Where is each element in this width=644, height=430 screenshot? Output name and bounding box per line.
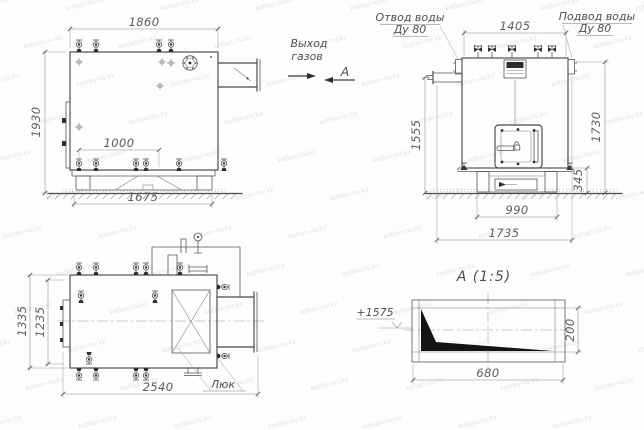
dim-total-depth: 1735 [489, 226, 520, 240]
flue-duct-plan [217, 292, 257, 352]
elevation-text: +1575 [356, 306, 393, 319]
dim-width-inner: 1235 [33, 307, 47, 338]
water-outlet-label: Отвод воды Ду 80 [376, 11, 458, 59]
water-inlet-flange [568, 60, 577, 75]
crosshair-icon [156, 82, 164, 90]
elevation-mark: +1575 [356, 306, 412, 328]
hatch-opening [172, 290, 210, 353]
valve-icon [508, 45, 517, 58]
drawing-sheet: kotlan-nv.kzkotlan-nv.kzkotlan-nv.kzkotl… [0, 0, 644, 430]
valve-icon [93, 368, 99, 380]
side-view-dimensions: 1860 1930 1000 1675 [29, 15, 220, 208]
valve-icon [221, 159, 227, 171]
crosshair-icon [75, 123, 83, 131]
crosshair-icon [167, 59, 175, 67]
valve-icon [474, 45, 483, 58]
valve-icon [133, 263, 139, 275]
section-title: А (1:5) [456, 269, 511, 285]
dim-base-width: 1675 [128, 190, 159, 204]
side-stub-pipe [428, 72, 462, 84]
base-frame [72, 170, 215, 190]
valve-icon [93, 263, 99, 275]
valve-icon [93, 159, 99, 171]
front-base [458, 168, 572, 192]
section-cut-mark: А [324, 64, 355, 83]
valve-icon [217, 353, 229, 359]
valve-icon [133, 159, 139, 171]
flue-duct [218, 59, 260, 91]
dim-base-height: 345 [571, 168, 585, 191]
dim-height-right: 1730 [589, 112, 603, 143]
valve-icon [168, 40, 174, 52]
valve-icon [152, 291, 158, 303]
valve-icon [76, 263, 82, 275]
dim-height: 1930 [29, 107, 43, 138]
valve-icon [76, 368, 82, 380]
dim-length: 2540 [143, 380, 174, 394]
valve-icon [534, 45, 543, 58]
valve-icon [548, 45, 557, 58]
gas-flow-arrow-icon [307, 73, 316, 79]
section-view: А (1:5) +1575 680 200 [356, 269, 582, 384]
furnace-door [495, 125, 542, 168]
water-outlet-text-2: Ду 80 [393, 23, 427, 36]
plan-view: 1335 1235 2540 Люк [15, 233, 265, 398]
plan-door-plate [60, 300, 70, 347]
side-view: 1860 1930 1000 1675 Выход газов А [29, 15, 355, 208]
dim-height: 200 [563, 318, 577, 341]
technical-drawing-canvas: 1860 1930 1000 1675 Выход газов А [0, 0, 644, 430]
water-inlet-label: Подвод воды Ду 80 [559, 10, 636, 58]
water-outlet-flange [453, 60, 462, 75]
door-handle [497, 146, 515, 151]
gas-outlet-text-1: Выход [290, 37, 327, 50]
valve-icon [217, 284, 229, 290]
valve-icon [156, 40, 162, 52]
valve-icon [176, 159, 182, 171]
valve-icon [133, 368, 139, 380]
section-arrow-icon [324, 77, 333, 83]
water-inlet-text-2: Ду 80 [578, 22, 612, 35]
crosshair-icon [158, 58, 166, 66]
crosshair-icon [75, 58, 83, 66]
dim-width-top: 1405 [500, 19, 531, 33]
front-view-dimensions: 1405 1555 1730 345 990 1735 [409, 19, 609, 244]
dim-width-outer: 1335 [15, 306, 29, 337]
valve-icon [488, 45, 497, 58]
dim-width-top: 1860 [129, 15, 160, 29]
section-letter: А [340, 64, 350, 79]
dim-width: 680 [476, 366, 499, 380]
dim-height-left: 1555 [409, 120, 423, 151]
nameplate [504, 60, 526, 78]
valve-icon [86, 352, 92, 364]
valve-icon [143, 263, 149, 275]
dim-bottom-connections: 1000 [104, 136, 135, 150]
gas-outlet-text-2: газов [291, 50, 323, 63]
flange-circle-icon [183, 56, 197, 70]
valve-icon [78, 291, 84, 303]
bottom-stub [184, 368, 202, 376]
front-view: Отвод воды Ду 80 Подвод воды Ду 80 1405 … [376, 10, 636, 244]
valve-icon [143, 159, 149, 171]
valve-icon [143, 368, 149, 380]
valve-icon [93, 40, 99, 52]
level-arrow-icon [392, 322, 402, 328]
gas-outlet-label: Выход газов [288, 37, 328, 79]
dim-base-width: 990 [505, 203, 528, 217]
ground-line [425, 190, 622, 200]
valve-icon [76, 40, 82, 52]
hatch-text: Люк [210, 378, 236, 391]
valve-icon [177, 263, 183, 275]
